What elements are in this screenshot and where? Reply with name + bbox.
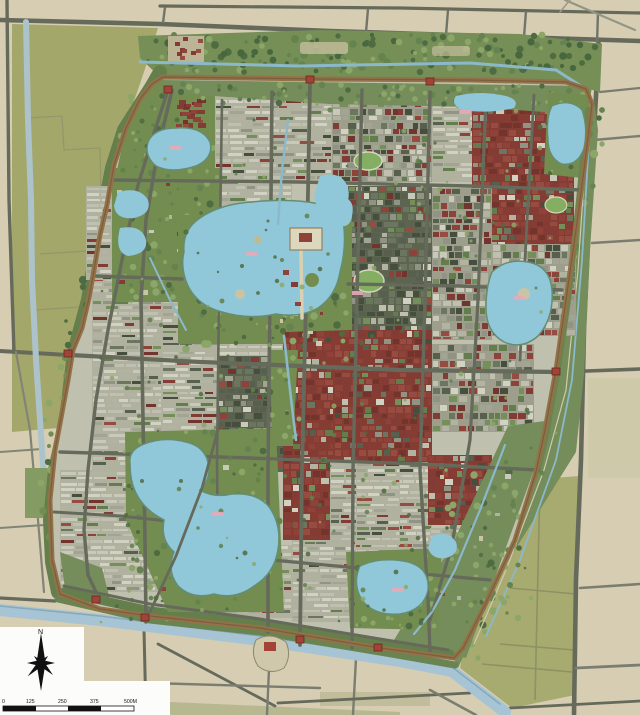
svg-text:0: 0 xyxy=(2,699,5,705)
svg-text:500M: 500M xyxy=(124,699,137,705)
svg-text:250: 250 xyxy=(58,699,67,705)
svg-text:N: N xyxy=(38,629,43,636)
svg-text:125: 125 xyxy=(26,699,35,705)
svg-text:375: 375 xyxy=(90,699,99,705)
